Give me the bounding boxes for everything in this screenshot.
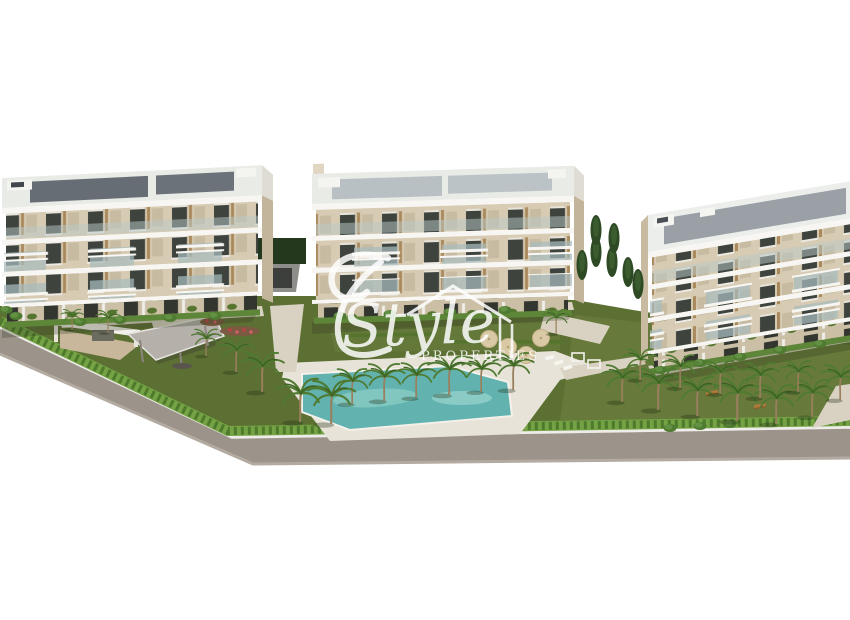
cypress-tree bbox=[591, 215, 602, 245]
property-render-image: Style PROPERTIES bbox=[0, 0, 850, 620]
roof-hatch-glass bbox=[11, 182, 24, 188]
roof-panel bbox=[448, 172, 552, 193]
cypress-tree bbox=[623, 257, 634, 287]
side-roof bbox=[574, 165, 584, 201]
cypress-tree bbox=[609, 223, 620, 253]
apartment-block-left bbox=[2, 165, 273, 328]
cypress-trees bbox=[577, 215, 644, 299]
bush bbox=[209, 312, 222, 320]
bush bbox=[10, 312, 23, 320]
roof-hatch bbox=[236, 168, 256, 178]
complex-render: Style PROPERTIES bbox=[0, 0, 850, 620]
bush bbox=[774, 346, 787, 354]
bush bbox=[664, 424, 677, 432]
bush bbox=[164, 314, 177, 322]
bush bbox=[0, 306, 13, 314]
side-wall bbox=[262, 195, 273, 304]
bush bbox=[499, 306, 512, 314]
roof-panel bbox=[156, 172, 234, 195]
side-roof bbox=[262, 165, 273, 202]
cypress-tree bbox=[633, 269, 644, 299]
bush bbox=[734, 353, 747, 361]
bush bbox=[694, 422, 707, 430]
bush bbox=[814, 340, 827, 348]
cypress-tree bbox=[577, 250, 588, 280]
roof-hatch bbox=[318, 177, 340, 188]
bush bbox=[694, 359, 707, 367]
side-wall bbox=[574, 195, 584, 303]
watermark-caps-word: PROPERTIES bbox=[421, 349, 540, 364]
roof-hatch bbox=[548, 169, 566, 179]
roof-panel bbox=[332, 176, 442, 199]
